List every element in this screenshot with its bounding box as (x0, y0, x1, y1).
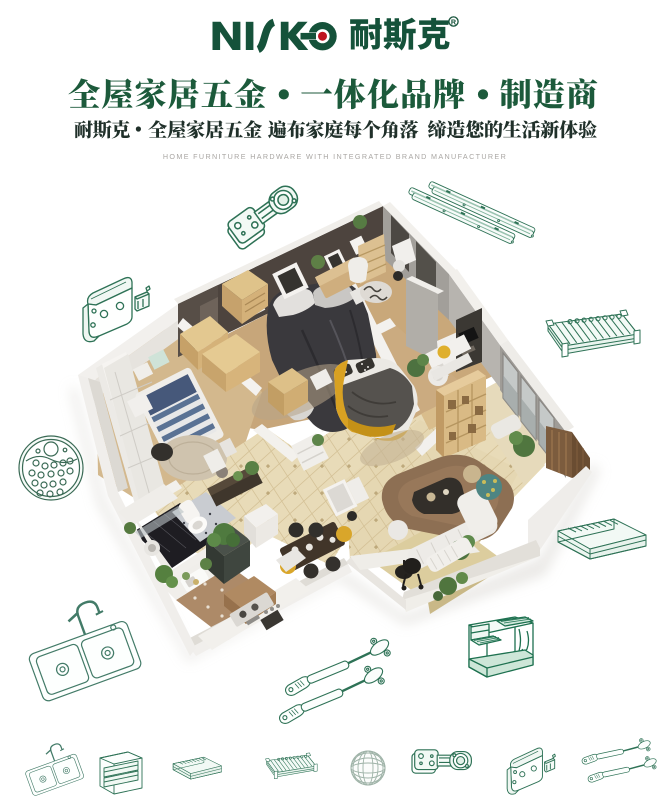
svg-text:R: R (451, 17, 457, 26)
svg-text:HOME FURNITURE HARDWARE WITH I: HOME FURNITURE HARDWARE WITH INTEGRATED … (163, 152, 507, 161)
